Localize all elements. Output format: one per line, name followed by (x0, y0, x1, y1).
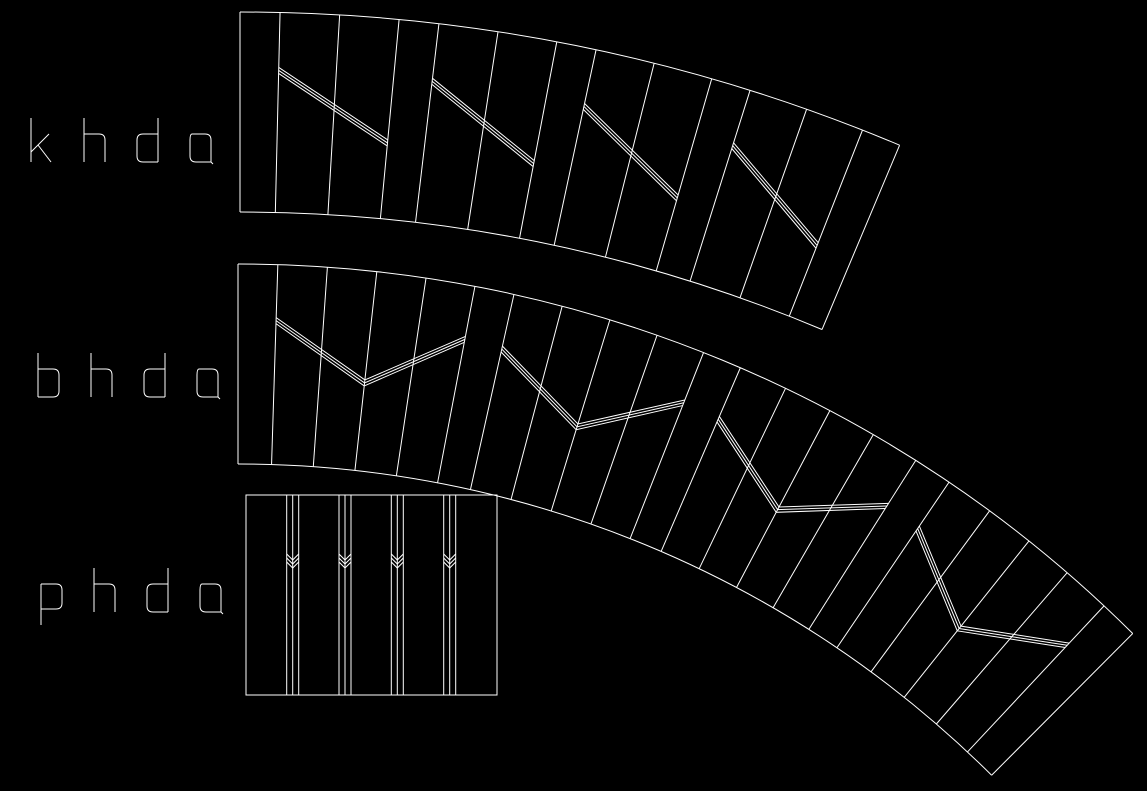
khda-band-divider (690, 90, 750, 281)
glyph-stroke (192, 134, 211, 162)
bhda-band-chevron-mark (502, 349, 684, 427)
khda-band-divider (328, 15, 340, 215)
glyph-stroke (41, 584, 62, 609)
glyph-stroke (147, 584, 168, 612)
bhda-band-divider (992, 634, 1133, 776)
drawing-root (31, 12, 1133, 775)
glyph-h (91, 353, 112, 397)
bhda-band-divider (661, 368, 740, 552)
bhda-band-divider (967, 606, 1104, 752)
bhda-band-divider (313, 267, 327, 467)
bhda-band-divider (511, 306, 562, 499)
khda-band-drawing[interactable] (240, 12, 900, 330)
glyph-a (190, 134, 213, 164)
phda-panel-drawing[interactable] (246, 495, 497, 695)
bhda-band-divider (438, 286, 475, 482)
bhda-band-divider (470, 294, 514, 489)
khda-band-diagonal-mark (583, 109, 676, 200)
khda-band-divider (416, 24, 439, 223)
khda-band-diagonal-mark (584, 106, 677, 197)
glyph-b (38, 353, 59, 397)
phda-panel-outline (246, 495, 497, 695)
khda-band-diagonal-mark (432, 81, 534, 163)
glyph-a (197, 369, 220, 399)
bhda-band-chevron-mark (502, 346, 684, 424)
glyph-stroke (94, 584, 115, 612)
khda-band-divider (740, 109, 807, 298)
khda-band-divider (822, 145, 900, 329)
glyph-stroke (84, 134, 105, 162)
bhda-band-divider (904, 541, 1029, 697)
glyph-stroke (137, 134, 158, 162)
phda-panel-label[interactable] (41, 568, 223, 625)
bhda-band-divider (551, 320, 610, 511)
bhda-band-divider (936, 573, 1067, 724)
glyph-p (41, 584, 62, 625)
glyph-stroke (202, 584, 221, 612)
bhda-band-chevron-mark (718, 419, 887, 509)
khda-band-diagonal-mark (732, 149, 816, 249)
drawing-canvas[interactable] (0, 0, 1147, 791)
bhda-band-divider (699, 388, 785, 568)
glyph-d (144, 353, 165, 397)
khda-band-divider (520, 42, 557, 239)
bhda-band-divider (809, 460, 916, 629)
bhda-band-drawing[interactable] (238, 264, 1133, 775)
bhda-band-divider (396, 278, 426, 476)
khda-band-diagonal-mark (734, 143, 819, 243)
glyph-stroke (221, 612, 223, 614)
khda-band-divider (656, 79, 712, 271)
glyph-stroke (31, 134, 49, 152)
bhda-band-divider (773, 435, 873, 608)
bhda-band-outer-edge (238, 264, 1133, 634)
glyph-stroke (218, 397, 220, 399)
glyph-stroke (91, 369, 112, 397)
glyph-stroke (200, 584, 221, 612)
khda-band-diagonal-mark (733, 146, 817, 246)
khda-band-divider (789, 130, 862, 316)
glyph-h (94, 568, 115, 612)
bhda-band-divider (272, 265, 278, 465)
glyph-stroke (38, 145, 51, 162)
glyph-stroke (211, 162, 213, 164)
cad-viewport[interactable] (0, 0, 1147, 791)
glyph-d (147, 568, 168, 612)
glyph-stroke (199, 369, 218, 397)
khda-band-divider (554, 50, 596, 246)
glyph-stroke (197, 369, 218, 397)
khda-band-diagonal-mark (432, 84, 533, 166)
glyph-stroke (144, 369, 165, 397)
bhda-band-divider (737, 411, 830, 588)
khda-band-divider (275, 12, 280, 212)
bhda-band-label[interactable] (38, 353, 220, 399)
glyph-d (137, 118, 158, 162)
glyph-k (31, 118, 51, 162)
khda-band-diagonal-mark (585, 103, 679, 195)
khda-band-diagonal-mark (432, 78, 534, 160)
glyph-h (84, 118, 105, 162)
glyph-a (200, 584, 223, 614)
glyph-stroke (38, 369, 59, 397)
bhda-band-chevron-mark (717, 422, 885, 512)
khda-band-divider (605, 63, 654, 257)
bhda-band-divider (871, 511, 990, 672)
bhda-band-chevron-mark (719, 416, 888, 507)
bhda-band-divider (355, 272, 377, 471)
khda-band-divider (380, 19, 399, 218)
bhda-band-chevron-mark (501, 352, 683, 430)
khda-band-label[interactable] (31, 118, 213, 164)
glyph-stroke (190, 134, 211, 162)
